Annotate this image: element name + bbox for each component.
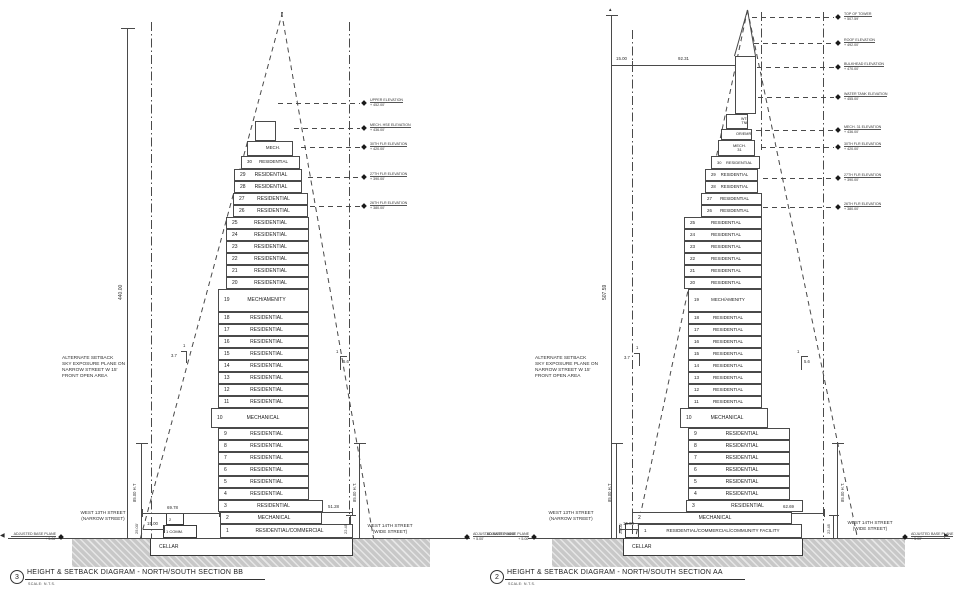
- elevation-marker-value: + 507.59': [844, 17, 872, 21]
- annotation-sky-exposure-aa: ALTERNATE SETBACK SKY EXPOSURE PLANE ON …: [535, 356, 598, 380]
- floor-label: RESIDENTIAL: [699, 245, 761, 250]
- floor-number: 6: [224, 468, 233, 473]
- floor-box-bb-25: 25RESIDENTIAL: [226, 217, 309, 229]
- floor-label: RESIDENTIAL: [233, 444, 308, 449]
- podium-floor1-comm-bb: 1 COMM.: [163, 525, 197, 538]
- elevation-marker-diamond-icon: [361, 144, 367, 150]
- dim-base-left-bb: 25.00': [135, 523, 139, 534]
- base-plane-marker-text: ADJUSTED BASE PLANE+ 5.00': [11, 532, 56, 542]
- floor-label: RESIDENTIAL: [720, 185, 757, 189]
- dim-62-69-aa: 62.69: [783, 505, 794, 510]
- floor-box-aa-5: 5RESIDENTIAL: [688, 476, 790, 488]
- floor-label: RESIDENTIAL: [233, 316, 308, 321]
- slope-ratio-rise-aa-left: 1: [636, 346, 638, 351]
- dim-arrow-top-icon: ▲: [608, 8, 612, 13]
- floor-box-bb-28: 28RESIDENTIAL: [234, 181, 302, 193]
- elevation-marker-text: 27TH FLR ELEVATION+ 390.00': [370, 172, 407, 182]
- dim-ht-left-bb: 85.00 H.T: [133, 484, 138, 502]
- floor-number: 28: [711, 185, 720, 189]
- floor-label: RESIDENTIAL: [703, 376, 761, 381]
- floor-number: 30: [717, 161, 726, 165]
- podium-floor2-bb: 2: [166, 513, 184, 525]
- elevation-marker-text: 30TH FLR ELEVATION+ 420.00': [370, 142, 407, 152]
- floor-number: 18: [224, 316, 233, 321]
- floor-box-bb-9: 9RESIDENTIAL: [218, 428, 309, 440]
- elevation-leader: [754, 43, 834, 44]
- floor-number: 1: [644, 529, 653, 534]
- elevation-marker-value: + 380.00': [370, 206, 407, 210]
- floor-number: 9: [224, 432, 233, 437]
- elevation-marker-diamond-icon: [361, 100, 367, 106]
- elevation-leader: [757, 67, 834, 68]
- elevation-marker-value: + 380.00': [844, 207, 881, 211]
- floor-label: MECHANICAL: [695, 416, 767, 421]
- floor-number: 7: [224, 456, 233, 461]
- elevation-leader: [756, 130, 834, 131]
- elevation-marker-value: + 436.00': [844, 130, 881, 134]
- floor-box-bb-11: 11RESIDENTIAL: [218, 396, 309, 408]
- dim-92-31-aa: 92.31: [678, 57, 689, 62]
- floor-label: RESIDENTIAL: [233, 388, 308, 393]
- dim-15-00-top-aa: 15.00: [616, 57, 627, 62]
- floor-number: 5: [224, 480, 233, 485]
- elevation-leader: [308, 177, 360, 178]
- slope-ratio-tick: [639, 353, 640, 366]
- floor-box-aa-17: 17RESIDENTIAL: [688, 324, 762, 336]
- floor-box-aa-12: 12RESIDENTIAL: [688, 384, 762, 396]
- floor-label: RESIDENTIAL: [233, 504, 322, 509]
- elevation-leader: [763, 207, 834, 208]
- elevation-marker-diamond-icon: [361, 203, 367, 209]
- floor-box-bb-16: 16RESIDENTIAL: [218, 336, 309, 348]
- floor-number: 10: [686, 416, 695, 421]
- floor-label: RESIDENTIAL: [233, 400, 308, 405]
- elevation-marker-text: 26TH FLR ELEVATION+ 380.00': [370, 201, 407, 211]
- floor-number: 26: [707, 209, 716, 213]
- elevation-marker-diamond-icon: [361, 125, 367, 131]
- floor-number: 24: [232, 233, 241, 238]
- street-wall-dim-left-bb: [141, 443, 142, 538]
- floor-box-bb-1: 1RESIDENTIAL/COMMERCIAL: [220, 524, 353, 538]
- setback-centerline-left-bb: [151, 22, 152, 538]
- floor-box-bb-18: 18RESIDENTIAL: [218, 312, 309, 324]
- floor-box-bb-13: 13RESIDENTIAL: [218, 372, 309, 384]
- slope-ratio-tick: [802, 356, 808, 357]
- slope-ratio-tick: [801, 356, 802, 370]
- street-label-west14-aa: WEST 14TH STREET (WIDE STREET): [838, 520, 902, 531]
- title-underline-bb: [25, 579, 265, 580]
- dim-line: [136, 443, 148, 444]
- floor-number: 29: [711, 173, 720, 177]
- floor-number: 21: [232, 269, 241, 274]
- floor-label: RESIDENTIAL: [699, 233, 761, 238]
- elevation-marker-value: + 420.00': [370, 147, 407, 151]
- slope-ratio-run-bb-left: 3.7: [171, 354, 177, 359]
- drawing-canvas: 3 HEIGHT & SETBACK DIAGRAM - NORTH/SOUTH…: [0, 0, 960, 590]
- floor-number: 5: [694, 480, 703, 485]
- dim-ht-left-aa: 85.00 H.T: [608, 484, 613, 502]
- floor-label: RESIDENTIAL: [241, 281, 308, 286]
- floor-number: 16: [694, 340, 703, 345]
- floor-number: 20: [690, 281, 699, 286]
- dim-overall-height-bb: 440.00: [119, 285, 125, 300]
- floor-box-aa-6: 6RESIDENTIAL: [688, 464, 790, 476]
- floor-label: RESIDENTIAL: [703, 468, 789, 473]
- elevation-marker-text: ROOF ELEVATION+ 492.00': [844, 38, 875, 48]
- floor-box-aa-21: 21RESIDENTIAL: [684, 265, 762, 277]
- floor-box-aa-9: 9RESIDENTIAL: [688, 428, 790, 440]
- setback-centerline-left-aa: [632, 30, 633, 538]
- floor-label: RESIDENTIAL: [703, 432, 789, 437]
- overall-height-dim-aa: [611, 15, 612, 538]
- street-label-west14-bb: WEST 14TH STREET (WIDE STREET): [358, 523, 422, 534]
- floor-number: 3: [692, 504, 701, 509]
- floor-number: 19: [224, 298, 233, 303]
- floor-box-bb-6: 6RESIDENTIAL: [218, 464, 309, 476]
- dim-base-right-bb: 22.45: [344, 524, 348, 534]
- floor-number: 7: [694, 456, 703, 461]
- elevation-marker-diamond-icon: [835, 64, 841, 70]
- floor-number: 24: [690, 233, 699, 238]
- dim-ht-right-aa: 85.00 H.T.: [841, 483, 846, 502]
- floor-label: RESIDENTIAL: [233, 492, 308, 497]
- dim-line: [611, 443, 623, 444]
- floor-box-bb-10: 10MECHANICAL: [211, 408, 309, 428]
- elevation-marker-value: + 492.00': [844, 43, 875, 47]
- dim-line: [611, 61, 612, 69]
- floor-box-bb-27: 27RESIDENTIAL: [233, 193, 308, 205]
- floor-box-aa-27: 27RESIDENTIAL: [701, 193, 762, 205]
- floor-box-bb-7: 7RESIDENTIAL: [218, 452, 309, 464]
- floor-label: RESIDENTIAL: [233, 432, 308, 437]
- diagram-title-aa: HEIGHT & SETBACK DIAGRAM - NORTH/SOUTH S…: [507, 569, 723, 576]
- floor-box-bb-2: 2MECHANICAL: [220, 512, 322, 524]
- elevation-marker-diamond-icon: [835, 40, 841, 46]
- elevation-leader: [310, 206, 360, 207]
- floor-label: RESIDENTIAL: [233, 480, 308, 485]
- floor-label: RESIDENTIAL: [726, 161, 760, 165]
- floor-box-aa-19: 19MECH/AMENITY: [688, 289, 762, 312]
- floor-number: 8: [694, 444, 703, 449]
- slope-ratio-tick: [340, 356, 341, 370]
- floor-number: 30: [247, 160, 256, 164]
- elevation-marker-diamond-icon: [361, 174, 367, 180]
- floor-box-bb-22: 22RESIDENTIAL: [226, 253, 309, 265]
- floor-box-aa-23: 23RESIDENTIAL: [684, 241, 762, 253]
- slope-ratio-tick: [634, 353, 640, 354]
- floor-box-aa-25: 25RESIDENTIAL: [684, 217, 762, 229]
- slope-ratio-run-aa-left: 3.7: [624, 356, 630, 361]
- dim-line: [832, 443, 844, 444]
- floor-number: 4: [694, 492, 703, 497]
- dim-line: [352, 508, 353, 516]
- elevation-leader: [278, 103, 360, 104]
- floor-number: 29: [240, 173, 249, 178]
- floor-box-aa-10: 10MECHANICAL: [680, 408, 768, 428]
- base-plane-marker-value: + 5.00': [484, 537, 529, 541]
- diagram-title-bb: HEIGHT & SETBACK DIAGRAM - NORTH/SOUTH S…: [27, 569, 243, 576]
- floor-number: 28: [240, 185, 249, 190]
- floor-box-aa-18: 18RESIDENTIAL: [688, 312, 762, 324]
- floor-label: RESIDENTIAL: [699, 257, 761, 262]
- floor-box-bb-26: 26RESIDENTIAL: [233, 205, 308, 217]
- floor-label: RESIDENTIAL: [716, 209, 761, 213]
- floor-box-aa-15: 15RESIDENTIAL: [688, 348, 762, 360]
- base-plane-marker-diamond-icon: [464, 534, 470, 540]
- floor-label: RESIDENTIAL: [699, 269, 761, 274]
- floor-number: 27: [707, 197, 716, 201]
- floor-box-bb-19: 19MECH/AMENITY: [218, 289, 309, 312]
- floor-label: RESIDENTIAL: [703, 316, 761, 321]
- floor-box-aa-7: 7RESIDENTIAL: [688, 452, 790, 464]
- floor-number: 27: [239, 197, 248, 202]
- elevation-marker-text: UPPER ELEVATION+ 452.00': [370, 98, 403, 108]
- overall-height-dim-bb: [127, 28, 128, 538]
- floor-box-bb-3: 3RESIDENTIAL: [218, 500, 323, 512]
- dim-51-28-bb: 51.28: [328, 505, 339, 510]
- dim-overall-height-aa: 507.59: [603, 285, 609, 300]
- elevation-marker-value: + 420.00': [844, 147, 881, 151]
- floor-box-bb-12: 12RESIDENTIAL: [218, 384, 309, 396]
- elevation-marker-text: MECH. 31 ELEVATION+ 436.00': [844, 125, 881, 135]
- floor-number: 1: [226, 529, 235, 534]
- slope-ratio-tick: [186, 351, 187, 363]
- floor-label: MECH/AMENITY: [703, 298, 761, 302]
- elevation-marker-text: 26TH FLR ELEVATION+ 380.00': [844, 202, 881, 212]
- elevation-marker-text: BULKHEAD ELEVATION+ 470.00': [844, 62, 884, 72]
- dim-base-right-aa: 22.45: [827, 524, 831, 534]
- dim-line: [833, 515, 834, 538]
- dim-line: [354, 443, 366, 444]
- slope-ratio-tick: [341, 356, 347, 357]
- spire-edge-right-aa: [747, 10, 756, 56]
- floor-label: RESIDENTIAL: [703, 492, 789, 497]
- dim-69-78-bb: 69.78: [167, 506, 178, 511]
- floor-number: 3: [224, 504, 233, 509]
- base-plane-marker-text: ADJUSTED BASE PLANE+ 5.00': [911, 532, 953, 542]
- floor-label: RESIDENTIAL: [233, 376, 308, 381]
- floor-box-bb-17: 17RESIDENTIAL: [218, 324, 309, 336]
- floor-label: RESIDENTIAL: [233, 328, 308, 333]
- floor-number: 14: [224, 364, 233, 369]
- floor-label: RESIDENTIAL: [720, 173, 757, 177]
- floor-label: RESIDENTIAL/COMMERCIAL: [235, 529, 352, 534]
- floor-label: RESIDENTIAL: [241, 269, 308, 274]
- annotation-sky-exposure-bb: ALTERNATE SETBACK SKY EXPOSURE PLANE ON …: [62, 356, 125, 380]
- dim-line: [606, 15, 618, 16]
- elevation-marker-value: + 455.00': [844, 97, 887, 101]
- floor-number: 23: [232, 245, 241, 250]
- floor-number: 21: [690, 269, 699, 274]
- floor-label: RESIDENTIAL: [241, 221, 308, 226]
- floor-label: RESIDENTIAL: [241, 257, 308, 262]
- street-label-west13-aa: WEST 13TH STREET (NARROW STREET): [538, 510, 604, 521]
- elevation-marker-value: + 470.00': [844, 67, 884, 71]
- title-circle-aa: 2: [490, 570, 504, 584]
- floor-box-bb-14: 14RESIDENTIAL: [218, 360, 309, 372]
- slope-ratio-rise-bb-right: 1: [336, 350, 338, 355]
- elevation-marker-diamond-icon: [835, 144, 841, 150]
- floor-label: RESIDENTIAL: [703, 340, 761, 345]
- floor-label: RESIDENTIAL: [233, 352, 308, 357]
- elevation-marker-diamond-icon: [835, 175, 841, 181]
- floor-box-bb: MECH.: [247, 141, 293, 156]
- floor-number: 13: [694, 376, 703, 381]
- floor-label: RESIDENTIAL: [703, 352, 761, 357]
- floor-box-bb-23: 23RESIDENTIAL: [226, 241, 309, 253]
- dim-15-00-base-aa: 15.00: [623, 522, 634, 527]
- slope-ratio-rise-aa-right: 1: [797, 350, 799, 355]
- floor-label: MECH.: [262, 146, 292, 150]
- floor-label: RESIDENTIAL: [233, 340, 308, 345]
- elevation-marker-diamond-icon: [835, 127, 841, 133]
- scale-label-bb: SCALE: N.T.S.: [28, 582, 55, 586]
- title-circle-bb: 3: [10, 570, 24, 584]
- slope-ratio-tick: [181, 351, 187, 352]
- floor-number: 19: [694, 298, 703, 302]
- floor-number: 8: [224, 444, 233, 449]
- slope-ratio-run-aa-right: 5.6: [804, 360, 810, 365]
- floor-box-aa-22: 22RESIDENTIAL: [684, 253, 762, 265]
- grade-arrow-left-icon: ◀: [0, 533, 5, 540]
- floor-box-aa-2: 2MECHANICAL: [632, 512, 792, 524]
- floor-box-bb-24: 24RESIDENTIAL: [226, 229, 309, 241]
- floor-box-aa-11: 11RESIDENTIAL: [688, 396, 762, 408]
- floor-box-aa-28: 28RESIDENTIAL: [705, 181, 758, 193]
- floor-label: RESIDENTIAL: [703, 456, 789, 461]
- dim-line: [142, 509, 143, 517]
- elevation-marker-diamond-icon: [835, 204, 841, 210]
- spire-edge-left-aa: [734, 10, 748, 56]
- floor-box-aa-29: 29RESIDENTIAL: [705, 169, 758, 181]
- floor-label: RESIDENTIAL: [699, 221, 761, 226]
- elevation-marker-text: MECH. HSE ELEVATION+ 436.00': [370, 123, 411, 133]
- dim-line: [121, 28, 135, 29]
- floor-number: 13: [224, 376, 233, 381]
- floor-box-aa-20: 20RESIDENTIAL: [684, 277, 762, 289]
- floor-label: RESIDENTIAL/COMMERCIAL/COMMUNITY FACILIT…: [653, 529, 801, 534]
- floor-label: RESIDENTIAL: [233, 364, 308, 369]
- floor-box-aa-24: 24RESIDENTIAL: [684, 229, 762, 241]
- floor-label: MECHANICAL: [226, 416, 308, 421]
- floor-label: RESIDENTIAL: [716, 197, 761, 201]
- floor-label: RESIDENTIAL: [703, 400, 761, 405]
- floor-box-aa-26: 26RESIDENTIAL: [701, 205, 762, 217]
- floor-label: MECH. 31: [733, 144, 754, 152]
- elevation-leader: [294, 128, 360, 129]
- elevation-marker-value: + 390.00': [844, 178, 881, 182]
- floor-number: 11: [694, 400, 703, 405]
- floor-box-bb-5: 5RESIDENTIAL: [218, 476, 309, 488]
- base-plane-marker-value: + 5.00': [11, 537, 56, 541]
- floor-box-bb-4: 4RESIDENTIAL: [218, 488, 309, 500]
- elevation-leader: [752, 17, 834, 18]
- floor-label: RESIDENTIAL: [248, 209, 307, 214]
- floor-number: 18: [694, 316, 703, 321]
- elevation-marker-text: WATER TANK ELEVATION+ 455.00': [844, 92, 887, 102]
- floor-number: 15: [694, 352, 703, 357]
- elevation-marker-diamond-icon: [835, 94, 841, 100]
- floor-box-bb-15: 15RESIDENTIAL: [218, 348, 309, 360]
- street-wall-dim-left-aa: [616, 443, 617, 538]
- elevation-leader: [301, 147, 360, 148]
- floor-label: RESIDENTIAL: [249, 173, 301, 178]
- floor-box-bb: [255, 121, 276, 141]
- floor-label: RESIDENTIAL: [233, 456, 308, 461]
- elevation-marker-diamond-icon: [835, 14, 841, 20]
- tower-face-centerline-aa: [761, 12, 762, 150]
- base-plane-marker-diamond-icon: [58, 534, 64, 540]
- floor-box-aa: OR/EMR: [721, 129, 752, 140]
- floor-label: MECHANICAL: [647, 516, 791, 521]
- street-label-west13-bb: WEST 13TH STREET (NARROW STREET): [70, 510, 136, 521]
- floor-number: 2: [226, 516, 235, 521]
- title-underline-aa: [505, 579, 745, 580]
- cellar-box-aa: CELLAR: [623, 538, 803, 556]
- floor-number: 25: [232, 221, 241, 226]
- elevation-leader: [763, 178, 834, 179]
- floor-box-aa-16: 16RESIDENTIAL: [688, 336, 762, 348]
- floor-box-bb-8: 8RESIDENTIAL: [218, 440, 309, 452]
- floor-number: 10: [217, 416, 226, 421]
- cellar-box-bb: CELLAR: [150, 538, 353, 556]
- floor-number: 16: [224, 340, 233, 345]
- floor-number: 23: [690, 245, 699, 250]
- floor-number: 22: [232, 257, 241, 262]
- setback-dim-15-bb: [143, 529, 165, 530]
- floor-number: 14: [694, 364, 703, 369]
- floor-box-bb-30: 30RESIDENTIAL: [241, 156, 300, 169]
- dim-15-00-bb: 15.00: [147, 522, 158, 527]
- dim-ht-right-bb: 85.00 H.T.: [353, 483, 358, 502]
- floor-label: RESIDENTIAL: [249, 185, 301, 190]
- floor-label: MECH/AMENITY: [233, 298, 308, 303]
- floor-box-bb-29: 29RESIDENTIAL: [234, 169, 302, 181]
- elevation-marker-value: + 452.00': [370, 103, 403, 107]
- dim-line: [346, 515, 356, 516]
- floor-label: RESIDENTIAL: [241, 233, 308, 238]
- scale-label-aa: SCALE: N.T.S.: [508, 582, 535, 586]
- dim-line: [824, 509, 825, 517]
- floor-box-aa-13: 13RESIDENTIAL: [688, 372, 762, 384]
- floor-label: RESIDENTIAL: [699, 281, 761, 286]
- floor-box-bb-20: 20RESIDENTIAL: [226, 277, 309, 289]
- slope-ratio-rise-bb-left: 1: [183, 344, 185, 349]
- floor-number: 25: [690, 221, 699, 226]
- floor-number: 6: [694, 468, 703, 473]
- elevation-marker-text: TOP OF TOWER+ 507.59': [844, 12, 872, 22]
- floor-label: RESIDENTIAL: [703, 328, 761, 333]
- base-plane-marker-value: + 5.00': [911, 537, 953, 541]
- slope-ratio-run-bb-right: 5.6: [343, 360, 349, 365]
- setback-centerline-right-bb: [349, 22, 350, 538]
- floor-number: 17: [694, 328, 703, 333]
- floor-label: RESIDENTIAL: [248, 197, 307, 202]
- floor-box-aa-14: 14RESIDENTIAL: [688, 360, 762, 372]
- floor-label: OR/EMR: [736, 133, 752, 137]
- floor-box-aa: MECH. 31: [718, 140, 755, 156]
- floor-label: RESIDENTIAL: [256, 160, 299, 164]
- floor-number: 12: [224, 388, 233, 393]
- floor-number: 26: [239, 209, 248, 214]
- elevation-marker-text: 27TH FLR ELEVATION+ 390.00': [844, 173, 881, 183]
- floor-label: RESIDENTIAL: [241, 245, 308, 250]
- floor-number: 2: [638, 516, 647, 521]
- setback-centerline-right-aa: [823, 12, 824, 538]
- floor-number: 4: [224, 492, 233, 497]
- floor-number: 20: [232, 281, 241, 286]
- elevation-marker-text: 30TH FLR ELEVATION+ 420.00': [844, 142, 881, 152]
